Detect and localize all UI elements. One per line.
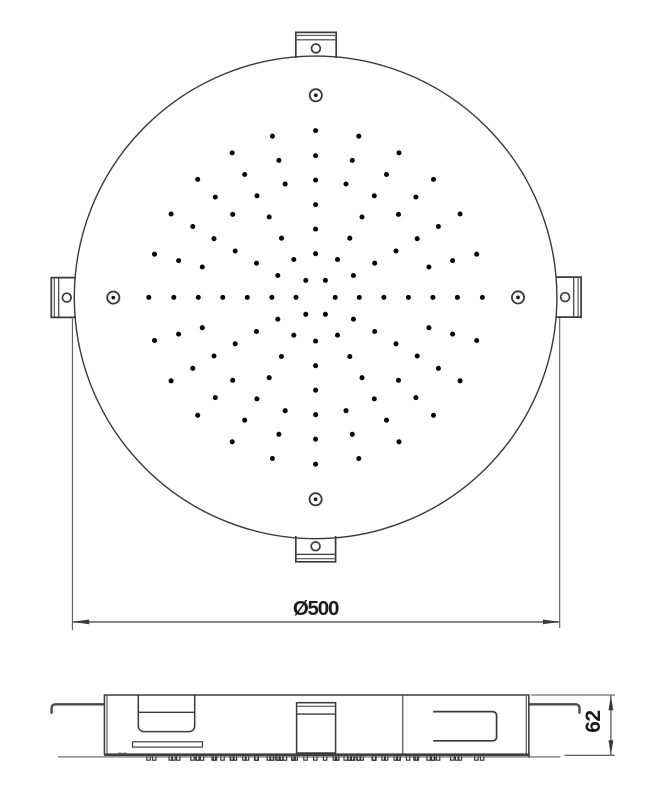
svg-text:Ø500: Ø500 <box>293 597 339 620</box>
svg-text:62: 62 <box>582 710 605 732</box>
